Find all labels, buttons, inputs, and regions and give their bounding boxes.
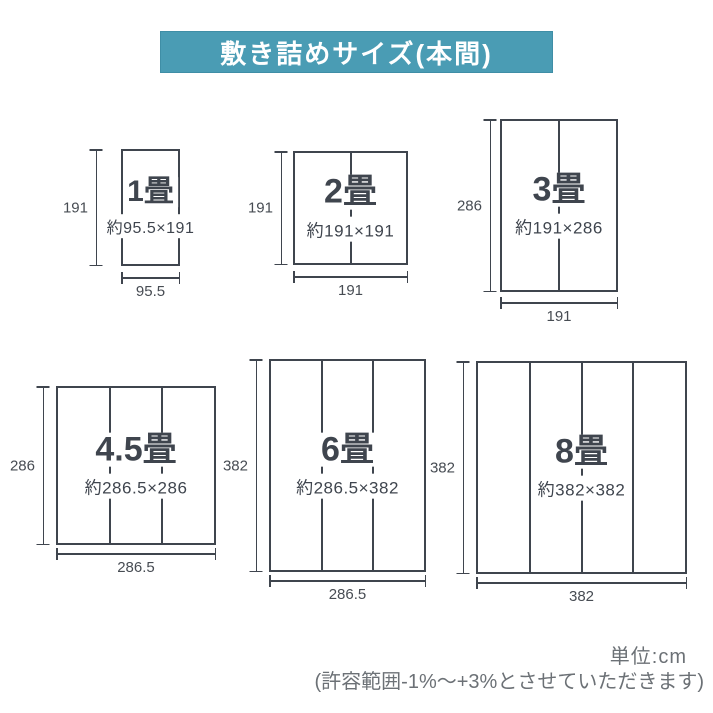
vertical-dimension-line xyxy=(96,149,98,266)
tatami-divider xyxy=(529,363,531,572)
diagram-3jo: 3畳 約191×286 286 191 xyxy=(500,119,618,292)
tatami-labels: 4.5畳 約286.5×286 xyxy=(82,432,191,499)
page-title: 敷き詰めサイズ(本間) xyxy=(220,34,493,71)
mat-size-label: 約191×286 xyxy=(512,214,606,239)
vertical-dimension-line xyxy=(463,361,465,574)
diagram-6jo: 6畳 約286.5×382 382 286.5 xyxy=(269,359,426,572)
horizontal-dimension-line xyxy=(56,553,216,555)
mat-size-label: 約95.5×191 xyxy=(104,214,198,238)
horizontal-dimension-line xyxy=(500,302,618,304)
height-dimension-label: 191 xyxy=(63,199,88,216)
height-dimension-label: 191 xyxy=(248,200,273,217)
mat-count-label: 3畳 xyxy=(529,172,590,207)
width-dimension-label: 286.5 xyxy=(269,586,426,603)
tolerance-note: (許容範囲-1%〜+3%とさせていただきます) xyxy=(315,665,704,694)
diagram-1jo: 1畳 約95.5×191 191 95.5 xyxy=(121,149,180,266)
width-dimension-label: 382 xyxy=(476,588,687,605)
diagram-8jo: 8畳 約382×382 382 382 xyxy=(476,361,687,574)
tatami-labels: 3畳 約191×286 xyxy=(512,172,606,239)
mat-count-label: 8畳 xyxy=(551,434,612,469)
tatami-labels: 6畳 約286.5×382 xyxy=(293,432,402,499)
mat-count-label: 4.5畳 xyxy=(91,432,180,467)
vertical-dimension-line xyxy=(43,386,45,545)
tatami-divider xyxy=(632,363,634,572)
width-dimension-label: 286.5 xyxy=(56,559,216,576)
vertical-dimension-line xyxy=(256,359,258,572)
mat-count-label: 2畳 xyxy=(320,175,381,210)
vertical-dimension-line xyxy=(281,151,283,265)
height-dimension-label: 382 xyxy=(223,457,248,474)
diagram-4-5jo: 4.5畳 約286.5×286 286 286.5 xyxy=(56,386,216,545)
tatami-labels: 1畳 約95.5×191 xyxy=(104,177,198,239)
height-dimension-label: 286 xyxy=(457,197,482,214)
height-dimension-label: 382 xyxy=(430,459,455,476)
tatami-size-sheet: 敷き詰めサイズ(本間) 1畳 約95.5×191 191 95.5 2畳 約19… xyxy=(0,0,713,713)
tatami-labels: 2畳 約191×191 xyxy=(304,175,398,242)
horizontal-dimension-line xyxy=(476,582,687,584)
horizontal-dimension-line xyxy=(269,580,426,582)
mat-size-label: 約286.5×382 xyxy=(293,474,402,499)
horizontal-dimension-line xyxy=(121,277,180,279)
width-dimension-label: 191 xyxy=(293,282,408,299)
mat-count-label: 6畳 xyxy=(317,432,378,467)
mat-size-label: 約286.5×286 xyxy=(82,474,191,499)
mat-size-label: 約382×382 xyxy=(535,476,629,501)
horizontal-dimension-line xyxy=(293,276,408,278)
height-dimension-label: 286 xyxy=(10,457,35,474)
mat-count-label: 1畳 xyxy=(123,177,178,208)
diagram-2jo: 2畳 約191×191 191 191 xyxy=(293,151,408,265)
width-dimension-label: 191 xyxy=(500,308,618,325)
mat-size-label: 約191×191 xyxy=(304,216,398,241)
width-dimension-label: 95.5 xyxy=(121,283,180,300)
title-banner: 敷き詰めサイズ(本間) xyxy=(160,31,553,73)
tatami-labels: 8畳 約382×382 xyxy=(535,434,629,501)
vertical-dimension-line xyxy=(490,119,492,292)
